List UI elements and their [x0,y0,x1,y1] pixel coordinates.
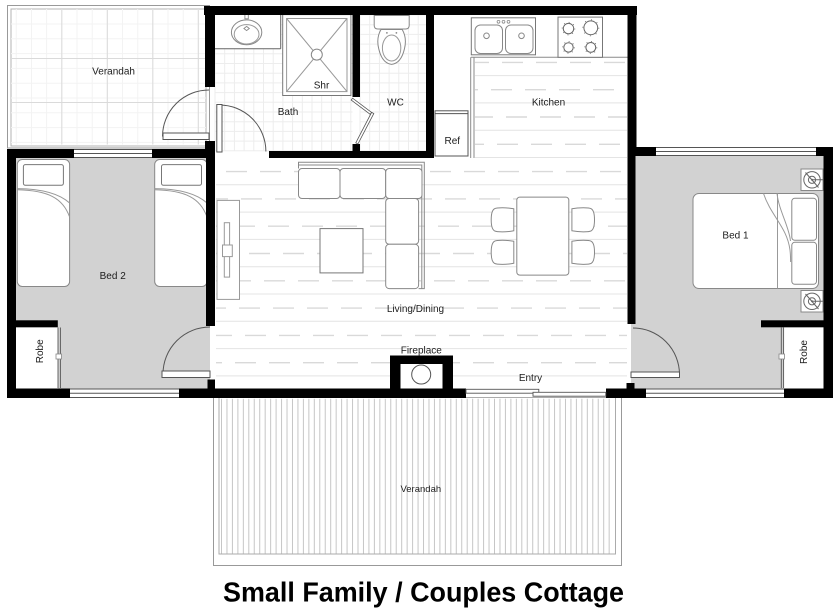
svg-text:Robe: Robe [799,340,810,364]
svg-text:Bath: Bath [278,107,299,118]
svg-text:Entry: Entry [519,373,542,384]
svg-text:Bed 2: Bed 2 [100,271,127,282]
svg-text:Bed 1: Bed 1 [722,230,749,241]
svg-text:Kitchen: Kitchen [532,97,565,108]
svg-text:Shr: Shr [314,80,330,91]
svg-text:Small Family / Couples Cottage: Small Family / Couples Cottage [223,577,624,608]
svg-text:Fireplace: Fireplace [401,345,443,356]
svg-text:Verandah: Verandah [400,484,441,495]
svg-text:Living/Dining: Living/Dining [387,304,444,315]
svg-text:Ref: Ref [445,136,461,147]
svg-text:WC: WC [387,98,404,109]
svg-text:Verandah: Verandah [92,67,135,78]
svg-text:Robe: Robe [35,339,46,363]
